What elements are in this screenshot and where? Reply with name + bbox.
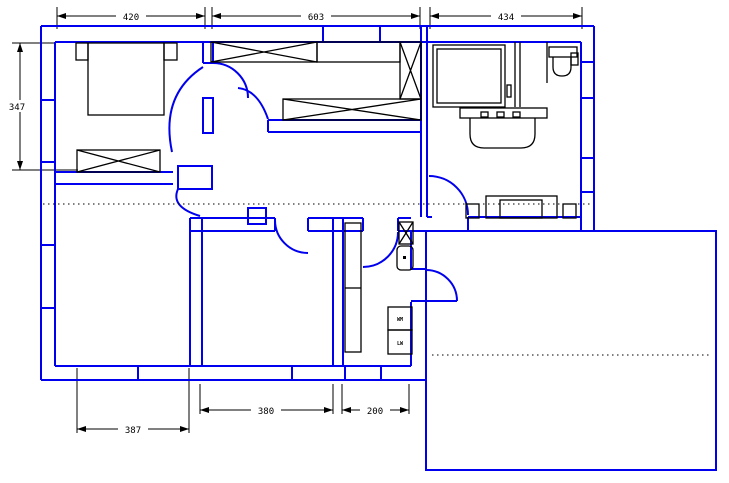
middle-room-door-arc (275, 220, 308, 253)
wardrobe-vertical-x (400, 42, 421, 99)
shower-partition (515, 42, 520, 107)
bedroom-furniture (76, 43, 177, 172)
toilet (549, 47, 577, 76)
dimension-extension-lines (12, 7, 582, 433)
chimney-block (248, 208, 266, 224)
window-ticks (41, 26, 594, 380)
dim-label-bottom-387: 387 (125, 426, 141, 436)
nightstand-left (76, 43, 88, 60)
dim-label-bottom-200: 200 (367, 407, 383, 417)
hall-door-arc (169, 67, 203, 152)
annex (426, 231, 716, 470)
dimension-arrows (17, 13, 582, 432)
washing-machine-label: WM (397, 317, 403, 323)
pantry-door-arc (363, 232, 398, 267)
partition-handle (507, 85, 511, 97)
radiator-bench (466, 196, 576, 218)
bedroom-door-arc (213, 63, 248, 98)
section-lines (43, 204, 712, 355)
lower-left-room-door-arc (176, 189, 200, 216)
wardrobe-bedroom (77, 150, 160, 172)
exterior-walls (41, 26, 594, 380)
door-jamb-stub (203, 98, 213, 133)
wardrobe-top-x (211, 42, 317, 62)
annex-door-arc (426, 270, 457, 301)
cad-canvas[interactable]: 420 603 434 347 387 380 200 (0, 0, 729, 483)
dimension-label-backgrounds (3, 10, 521, 435)
nightstand-right (164, 43, 177, 60)
floor-plan-svg: 420 603 434 347 387 380 200 (0, 0, 729, 483)
pocket-door-jamb (178, 166, 212, 189)
dim-label-top-434: 434 (498, 13, 514, 23)
shower (433, 45, 505, 107)
dim-label-top-603: 603 (308, 13, 324, 23)
dim-label-left-347: 347 (9, 103, 25, 113)
bathroom-fixtures (433, 42, 578, 218)
dryer-label: LW (397, 341, 404, 347)
annex-outline (426, 231, 716, 470)
dimension-lines (20, 16, 582, 429)
wardrobe-lower-x (283, 99, 421, 120)
dim-label-top-420: 420 (123, 13, 139, 23)
shower-inner (437, 49, 501, 103)
cabinet-top-plain (317, 42, 400, 62)
dim-label-bottom-380: 380 (258, 407, 274, 417)
bed (88, 43, 164, 115)
living-door-arc (238, 88, 268, 119)
hall-wardrobes (211, 42, 421, 120)
counter (345, 223, 361, 352)
bathroom-door-arc (429, 176, 468, 215)
utility-fixtures: WM LW (345, 222, 413, 354)
vanity-sink (460, 108, 547, 148)
